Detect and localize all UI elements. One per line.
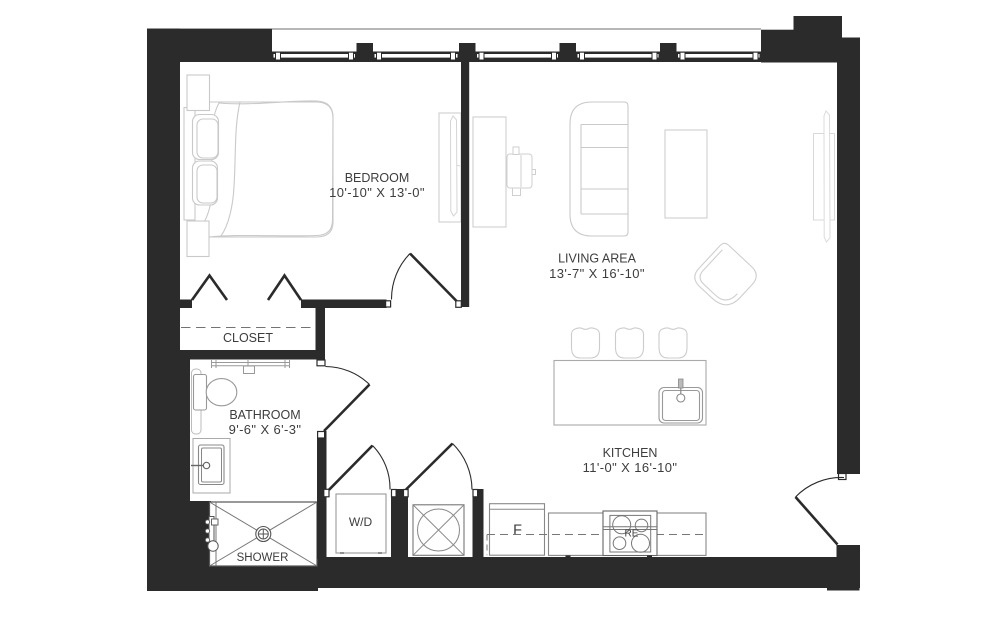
svg-text:10'-10" X 13'-0": 10'-10" X 13'-0": [329, 185, 425, 200]
svg-text:11'-0" X 16'-10": 11'-0" X 16'-10": [583, 460, 678, 475]
svg-text:W/D: W/D: [349, 515, 373, 529]
svg-text:F: F: [513, 523, 522, 539]
svg-text:CLOSET: CLOSET: [223, 331, 273, 345]
svg-text:SHOWER: SHOWER: [237, 552, 289, 564]
svg-text:9'-6" X 6'-3": 9'-6" X 6'-3": [229, 422, 302, 437]
svg-text:13'-7" X 16'-10": 13'-7" X 16'-10": [549, 266, 645, 281]
svg-text:RE: RE: [625, 529, 639, 540]
svg-text:LIVING AREA: LIVING AREA: [558, 252, 636, 266]
svg-text:BEDROOM: BEDROOM: [345, 171, 410, 185]
svg-text:KITCHEN: KITCHEN: [603, 446, 658, 460]
svg-text:BATHROOM: BATHROOM: [229, 408, 300, 422]
